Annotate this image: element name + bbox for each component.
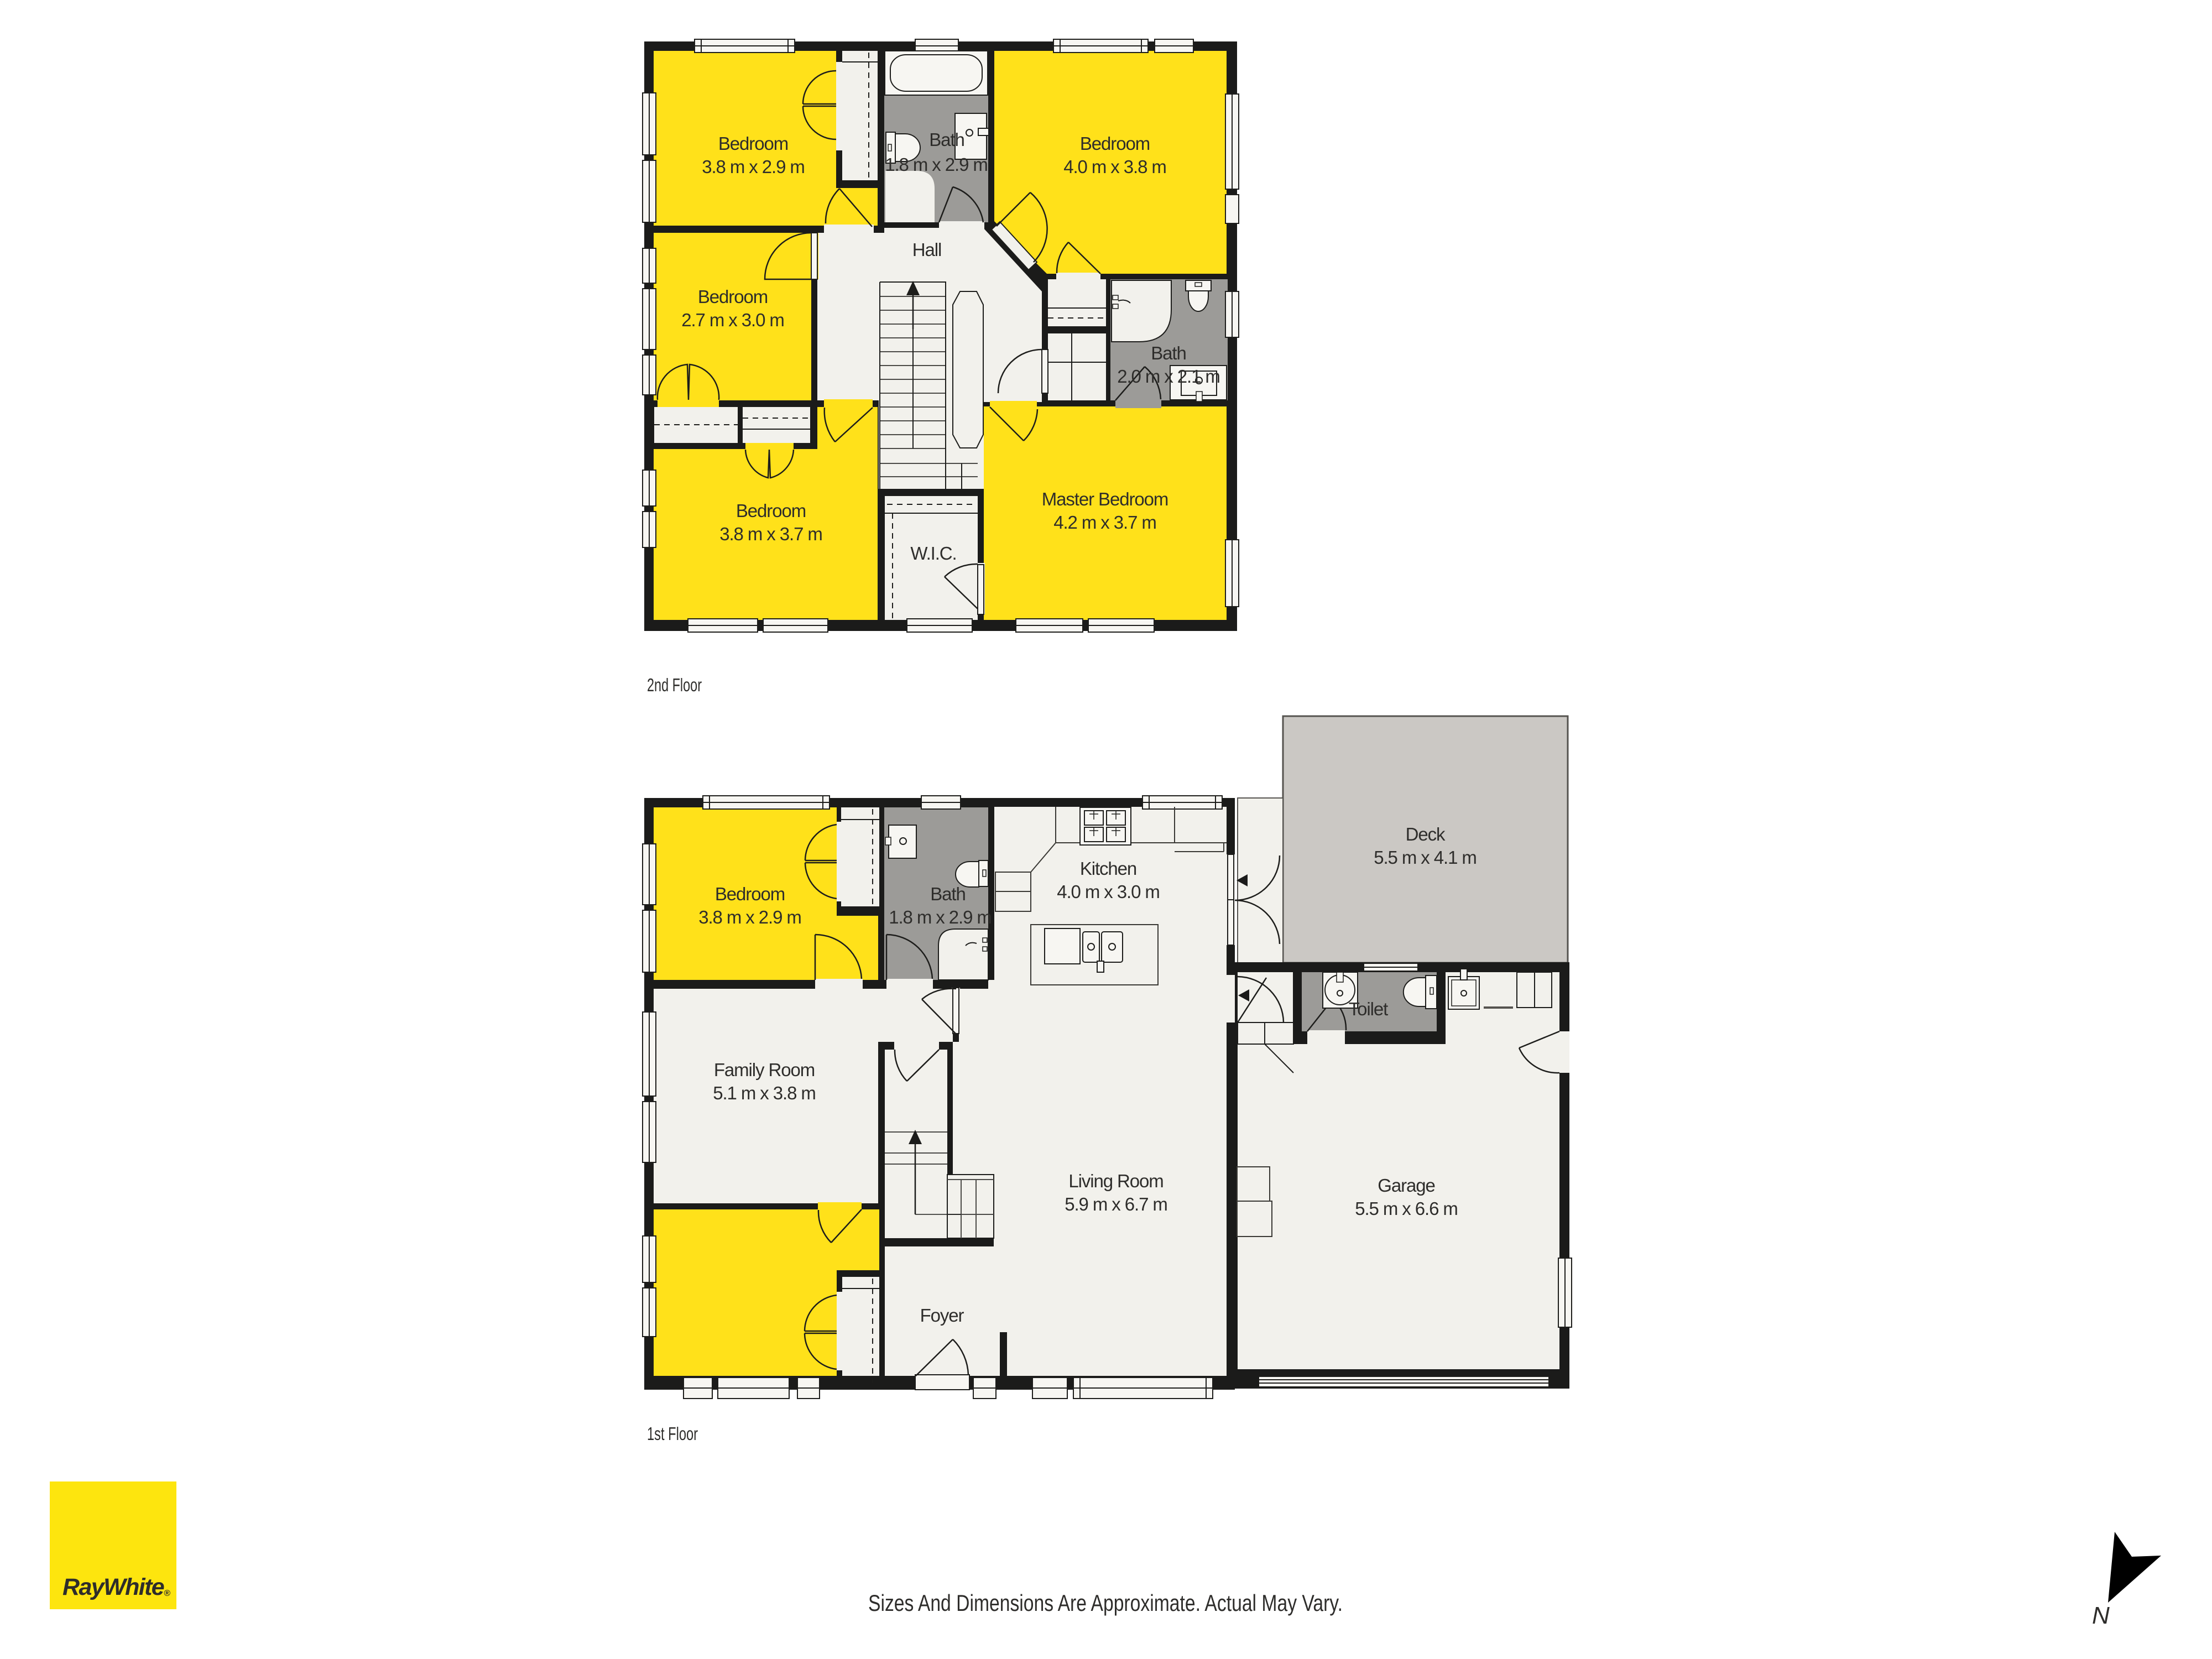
svg-text:Bedroom: Bedroom <box>715 884 785 904</box>
svg-text:1st Floor: 1st Floor <box>647 1423 698 1444</box>
svg-text:3.8 m x 2.9 m: 3.8 m x 2.9 m <box>702 156 805 177</box>
svg-text:3.8 m x 2.9 m: 3.8 m x 2.9 m <box>698 907 801 927</box>
svg-text:2.0 m x 2.1 m: 2.0 m x 2.1 m <box>1117 366 1220 387</box>
svg-text:Bedroom: Bedroom <box>736 500 806 521</box>
svg-text:Family Room: Family Room <box>714 1060 815 1080</box>
svg-text:5.5 m x 6.6 m: 5.5 m x 6.6 m <box>1355 1198 1458 1219</box>
svg-text:Foyer: Foyer <box>920 1305 964 1326</box>
svg-text:2.7 m x 3.0 m: 2.7 m x 3.0 m <box>681 310 784 330</box>
svg-text:5.9 m x 6.7 m: 5.9 m x 6.7 m <box>1065 1194 1167 1214</box>
svg-text:Master Bedroom: Master Bedroom <box>1042 489 1168 509</box>
svg-text:1.8 m x 2.9 m: 1.8 m x 2.9 m <box>889 907 992 927</box>
svg-text:4.0 m x 3.0 m: 4.0 m x 3.0 m <box>1057 881 1160 902</box>
svg-text:Bath: Bath <box>1151 343 1186 363</box>
svg-text:Living Room: Living Room <box>1068 1171 1163 1191</box>
svg-text:Kitchen: Kitchen <box>1080 858 1136 879</box>
svg-text:Bedroom: Bedroom <box>1080 133 1150 154</box>
svg-text:Bedroom: Bedroom <box>698 286 768 307</box>
svg-text:RayWhite®: RayWhite® <box>62 1574 170 1600</box>
svg-text:Garage: Garage <box>1378 1175 1434 1196</box>
svg-text:Bath: Bath <box>929 129 964 150</box>
svg-text:3.8 m x 3.7 m: 3.8 m x 3.7 m <box>719 524 822 544</box>
svg-text:Deck: Deck <box>1406 824 1446 844</box>
svg-text:Hall: Hall <box>912 239 941 260</box>
svg-text:Bath: Bath <box>930 884 966 904</box>
svg-text:W.I.C.: W.I.C. <box>910 543 956 564</box>
svg-text:4.2 m x 3.7 m: 4.2 m x 3.7 m <box>1053 512 1156 533</box>
svg-text:5.1 m x 3.8 m: 5.1 m x 3.8 m <box>713 1083 816 1103</box>
svg-text:Bedroom: Bedroom <box>718 133 788 154</box>
svg-text:4.0 m x 3.8 m: 4.0 m x 3.8 m <box>1063 156 1166 177</box>
svg-text:N: N <box>2092 1602 2110 1629</box>
svg-text:1.8 m x 2.9 m: 1.8 m x 2.9 m <box>885 154 988 175</box>
svg-text:2nd Floor: 2nd Floor <box>647 675 702 695</box>
svg-text:5.5 m x 4.1 m: 5.5 m x 4.1 m <box>1374 847 1477 868</box>
svg-text:Sizes And Dimensions Are Appro: Sizes And Dimensions Are Approximate. Ac… <box>868 1590 1343 1616</box>
svg-text:Toilet: Toilet <box>1349 999 1388 1019</box>
